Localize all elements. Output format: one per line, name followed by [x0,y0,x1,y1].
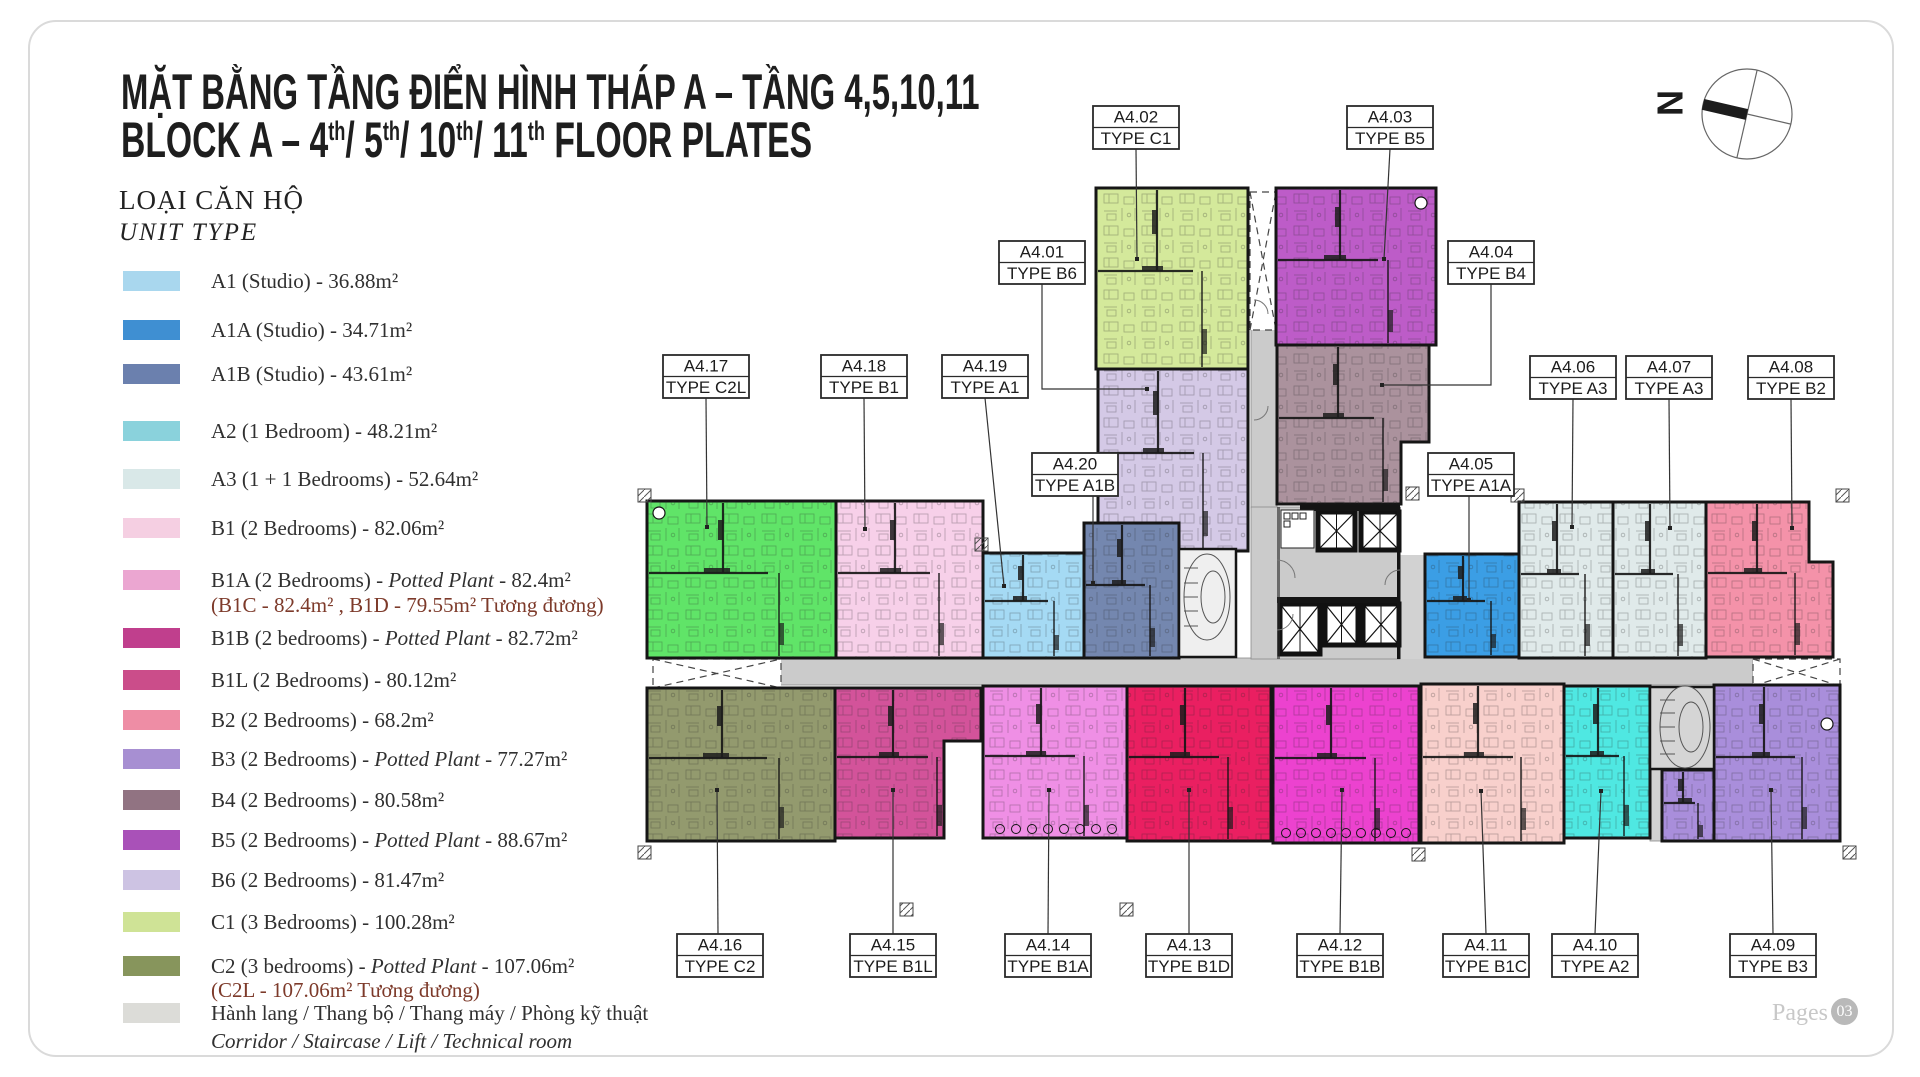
svg-text:N: N [1650,90,1691,116]
svg-text:TYPE B1D: TYPE B1D [1148,957,1230,976]
svg-text:TYPE A3: TYPE A3 [1539,379,1608,398]
svg-text:TYPE A1B: TYPE A1B [1035,476,1115,495]
svg-text:A4.12: A4.12 [1318,936,1362,955]
svg-text:A4.03: A4.03 [1368,108,1412,127]
svg-text:A4.06: A4.06 [1551,358,1595,377]
svg-text:A4.20: A4.20 [1053,455,1097,474]
svg-text:A4.05: A4.05 [1449,455,1493,474]
svg-text:TYPE A1: TYPE A1 [951,378,1020,397]
svg-text:TYPE B1B: TYPE B1B [1299,957,1380,976]
svg-text:A4.19: A4.19 [963,357,1007,376]
svg-text:TYPE A1A: TYPE A1A [1431,476,1512,495]
svg-text:A4.01: A4.01 [1020,243,1064,262]
svg-text:A4.13: A4.13 [1167,936,1211,955]
svg-text:A4.18: A4.18 [842,357,886,376]
svg-text:A4.08: A4.08 [1769,358,1813,377]
svg-text:TYPE B1: TYPE B1 [829,378,899,397]
svg-text:TYPE B4: TYPE B4 [1456,264,1526,283]
svg-text:TYPE B1C: TYPE B1C [1445,957,1527,976]
svg-text:A4.14: A4.14 [1026,936,1070,955]
svg-text:A4.09: A4.09 [1751,936,1795,955]
svg-text:TYPE C2L: TYPE C2L [666,378,746,397]
svg-text:TYPE B2: TYPE B2 [1756,379,1826,398]
svg-text:TYPE B1L: TYPE B1L [853,957,932,976]
svg-text:TYPE B1A: TYPE B1A [1007,957,1089,976]
svg-text:TYPE C1: TYPE C1 [1101,129,1172,148]
svg-text:TYPE A3: TYPE A3 [1635,379,1704,398]
svg-text:A4.10: A4.10 [1573,936,1617,955]
svg-text:A4.16: A4.16 [698,936,742,955]
svg-text:TYPE B5: TYPE B5 [1355,129,1425,148]
svg-text:A4.17: A4.17 [684,357,728,376]
svg-text:A4.15: A4.15 [871,936,915,955]
svg-text:A4.02: A4.02 [1114,108,1158,127]
svg-text:TYPE B6: TYPE B6 [1007,264,1077,283]
svg-text:TYPE B3: TYPE B3 [1738,957,1808,976]
svg-text:A4.11: A4.11 [1464,936,1507,955]
svg-text:A4.07: A4.07 [1647,358,1691,377]
svg-text:TYPE A2: TYPE A2 [1561,957,1630,976]
svg-text:TYPE C2: TYPE C2 [685,957,756,976]
svg-text:A4.04: A4.04 [1469,243,1513,262]
